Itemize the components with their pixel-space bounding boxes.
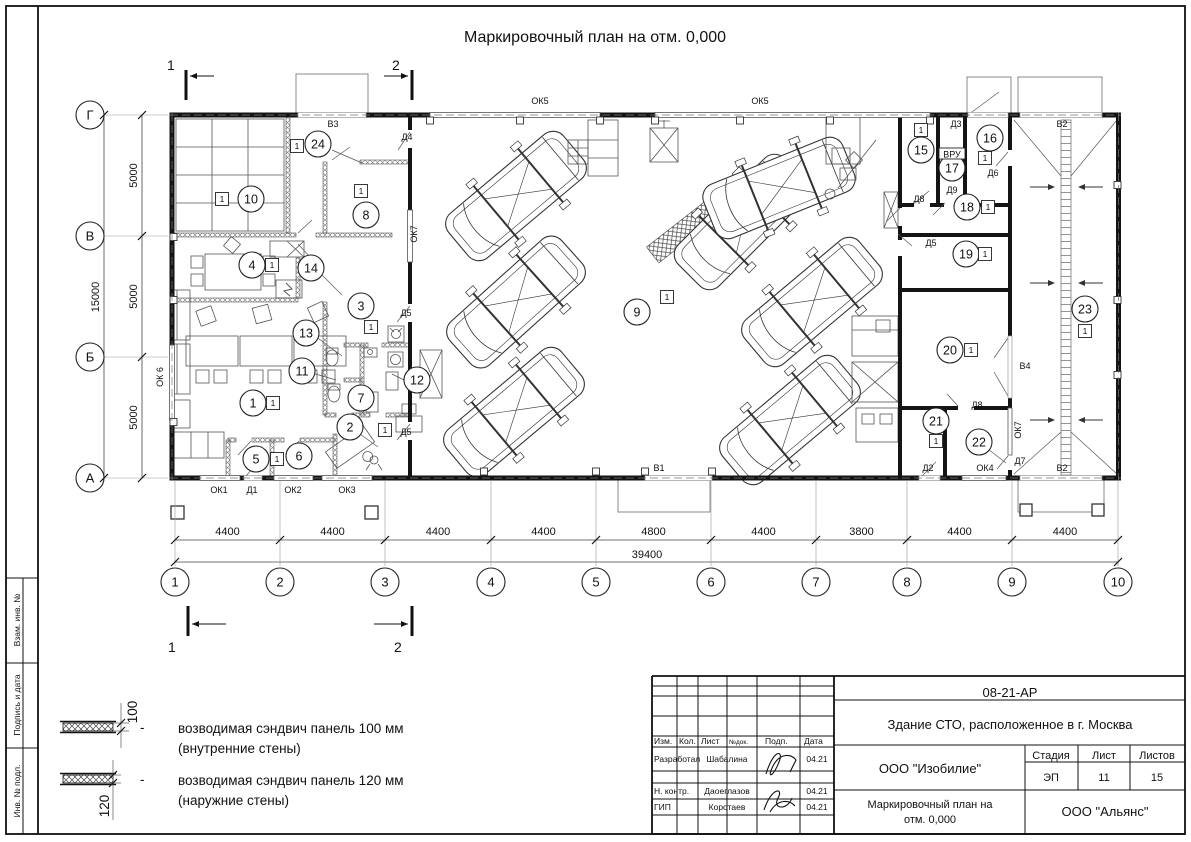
dimension-value: 4400 <box>1053 526 1077 538</box>
dimension-value: 4400 <box>320 526 344 538</box>
floor-type-number: 1 <box>270 260 275 270</box>
grid-axis-number: 5 <box>592 575 599 590</box>
floor-type-number: 1 <box>934 436 939 446</box>
col-list: Лист <box>701 736 720 746</box>
opening-label: В3 <box>327 119 338 129</box>
legend-text: возводимая сэндвич панель 120 мм <box>178 773 404 788</box>
dimension-value: 4400 <box>426 526 450 538</box>
plan-title: Маркировочный план на отм. 0,000 <box>464 29 726 46</box>
opening-label: Д8 <box>913 194 924 204</box>
room-number: 14 <box>304 262 318 276</box>
sidebar-label: Подпись и дата <box>12 674 22 735</box>
vehicles <box>430 116 896 499</box>
grid-axis-letter: В <box>86 229 95 244</box>
date: 04.21 <box>806 802 828 812</box>
legend-dash: - <box>140 720 145 735</box>
section-number: 1 <box>167 57 175 73</box>
date: 04.21 <box>806 786 828 796</box>
room-number: 24 <box>311 138 325 152</box>
section-number: 1 <box>168 639 176 655</box>
grid-axis-number: 4 <box>487 575 494 590</box>
stage-label: Стадия <box>1032 750 1070 762</box>
section-arrowhead <box>401 73 408 79</box>
signature <box>764 791 795 812</box>
opening-label: ОК7 <box>409 225 419 242</box>
grid-axis-number: 10 <box>1111 575 1125 590</box>
grid-axis-letter: Б <box>86 350 95 365</box>
section-number: 2 <box>394 639 402 655</box>
project-name: Здание СТО, расположенное в г. Москва <box>888 717 1134 732</box>
room-number: 21 <box>929 415 943 429</box>
role: ГИП <box>654 802 671 812</box>
opening-label: ОК1 <box>210 485 227 495</box>
frame-sidebar: Взам. инв. № Подпись и дата Инв. № подл. <box>12 594 22 818</box>
lane-arrowhead <box>1048 184 1055 190</box>
total-width-value: 39400 <box>632 549 663 561</box>
floor-type-number: 1 <box>986 202 991 212</box>
opening-label: В2 <box>1056 119 1067 129</box>
sidebar-label: Взам. инв. № <box>12 594 22 647</box>
stage-value: ЭП <box>1043 772 1059 784</box>
col-ndok: №док. <box>729 739 748 746</box>
opening-label: ОК 6 <box>155 367 165 387</box>
opening-label: ОК3 <box>338 485 355 495</box>
opening-label: ОК5 <box>751 96 768 106</box>
date: 04.21 <box>806 754 828 764</box>
opening-label: ОК4 <box>976 463 993 473</box>
grid-axis-letter: А <box>86 471 95 486</box>
dimension-value: 5000 <box>128 163 140 187</box>
person-name: Шабалина <box>706 754 747 764</box>
room-number: 10 <box>244 193 258 207</box>
sheet-label: Лист <box>1092 750 1116 762</box>
room-number: 1 <box>250 397 257 411</box>
room-number: 4 <box>249 259 256 273</box>
opening-label: Д5 <box>400 427 411 437</box>
opening-label: Д4 <box>401 132 412 142</box>
floor-type-number: 1 <box>359 186 364 196</box>
opening-label: ОК2 <box>284 485 301 495</box>
floor-type-number: 1 <box>665 292 670 302</box>
legend-text: возводимая сэндвич панель 100 мм <box>178 721 404 736</box>
legend-text: (наружние стены) <box>178 793 289 808</box>
col-kol: Кол. <box>679 736 696 746</box>
legend: 100 - возводимая сэндвич панель 100 мм (… <box>60 701 404 820</box>
design-company: ООО "Изобилие" <box>879 761 982 776</box>
drawing-title: отм. 0,000 <box>904 814 956 826</box>
lane-arrowhead <box>1078 417 1085 423</box>
opening-label: Д5 <box>925 238 936 248</box>
signature <box>766 753 796 774</box>
doc-number: 08-21-АР <box>983 685 1038 700</box>
role: Разработал <box>654 754 700 764</box>
lane-arrowhead <box>1078 184 1085 190</box>
grid-axis-number: 1 <box>171 575 178 590</box>
room-number: 17 <box>945 162 959 176</box>
room-number: 23 <box>1078 303 1092 317</box>
floor-type-number: 1 <box>919 125 924 135</box>
floor-type-number: 1 <box>969 345 974 355</box>
opening-label: Д7 <box>1014 456 1025 466</box>
sheets-label: Листов <box>1139 750 1175 762</box>
room-number: 22 <box>972 436 986 450</box>
title-block: 08-21-АР Здание СТО, расположенное в г. … <box>652 676 1185 834</box>
grid-axis-number: 9 <box>1008 575 1015 590</box>
opening-label: Д8 <box>971 400 982 410</box>
windows-and-gates <box>170 113 1122 481</box>
drawing-sheet: Взам. инв. № Подпись и дата Инв. № подл.… <box>0 0 1191 842</box>
sheets-value: 15 <box>1151 772 1163 784</box>
grid-axis-number: 3 <box>381 575 388 590</box>
exterior-walls <box>170 113 1122 481</box>
wall-axis-dashes <box>170 113 1121 480</box>
floor-type-number: 1 <box>295 141 300 151</box>
opening-label: Д5 <box>400 308 411 318</box>
person-name: Коротаев <box>709 802 746 812</box>
lane-arrowhead <box>1048 417 1055 423</box>
floor-type-number: 1 <box>983 153 988 163</box>
room-number: 7 <box>358 392 365 406</box>
sidebar-label: Инв. № подл. <box>12 765 22 818</box>
col-data: Дата <box>804 736 823 746</box>
legend-dim: 120 <box>97 795 112 818</box>
floor-type-number: 1 <box>983 249 988 259</box>
room-number: 5 <box>253 453 260 467</box>
interior-walls-100 <box>172 115 410 478</box>
dimension-value: 4400 <box>215 526 239 538</box>
floor-type-number: 1 <box>275 454 280 464</box>
room-number: 9 <box>634 306 641 320</box>
floor-type-number: 1 <box>1083 326 1088 336</box>
room-number: 11 <box>296 365 309 379</box>
room-number: 8 <box>363 209 370 223</box>
opening-label: В1 <box>653 463 664 473</box>
section-arrowhead <box>192 621 199 627</box>
room-number: 18 <box>960 201 974 215</box>
room-number: 2 <box>347 421 354 435</box>
lane-arrowhead <box>1078 280 1085 286</box>
opening-label: ОК5 <box>531 96 548 106</box>
legend-dim: 100 <box>125 701 140 724</box>
section-number: 2 <box>392 57 400 73</box>
dimension-value: 4400 <box>531 526 555 538</box>
legend-dash: - <box>140 772 145 787</box>
grid-axis-number: 2 <box>276 575 283 590</box>
room-number: 19 <box>959 248 973 262</box>
dimension-value: 3800 <box>849 526 873 538</box>
room-number: 16 <box>983 132 997 146</box>
room-number: 3 <box>358 300 365 314</box>
section-arrowhead <box>401 621 408 627</box>
dimension-value: 4400 <box>947 526 971 538</box>
dimension-value: 4800 <box>641 526 665 538</box>
floor-type-number: 1 <box>220 194 225 204</box>
sheet-value: 11 <box>1098 772 1109 784</box>
room-number: 12 <box>410 374 424 388</box>
room-number: 6 <box>296 450 303 464</box>
col-izm: Изм. <box>654 736 672 746</box>
grid-axis-number: 8 <box>903 575 910 590</box>
drive-through-lane <box>1014 120 1117 475</box>
dimension-value: 4400 <box>751 526 775 538</box>
opening-label: Д1 <box>246 485 257 495</box>
section-arrowhead <box>190 73 197 79</box>
room-number: 13 <box>299 327 313 341</box>
grid-axis-number: 6 <box>707 575 714 590</box>
floor-type-number: 1 <box>383 425 388 435</box>
dimension-value: 5000 <box>128 405 140 429</box>
grid-axis-letter: Г <box>86 108 93 123</box>
opening-label: ВРУ <box>943 150 961 160</box>
opening-label: В4 <box>1019 361 1030 371</box>
person-name: Даоеглазов <box>704 786 750 796</box>
opening-label: Д6 <box>987 168 998 178</box>
opening-label: Д3 <box>950 119 961 129</box>
role: Н. контр. <box>654 786 689 796</box>
opening-label: ОК7 <box>1013 421 1023 438</box>
grid-axis-number: 7 <box>812 575 819 590</box>
total-height-value: 15000 <box>90 282 102 313</box>
opening-label: В2 <box>1056 463 1067 473</box>
col-podp: Подп. <box>765 736 788 746</box>
room-number: 15 <box>914 144 928 158</box>
opening-label: Д9 <box>946 185 957 195</box>
legend-text: (внутренние стены) <box>178 741 301 756</box>
contractor: ООО "Альянс" <box>1062 804 1149 819</box>
lane-arrowhead <box>1048 280 1055 286</box>
room-number: 20 <box>943 344 957 358</box>
floor-type-number: 1 <box>271 398 276 408</box>
drawing-title: Маркировочный план на <box>867 799 993 811</box>
opening-label: Д2 <box>922 463 933 473</box>
floor-type-number: 1 <box>369 322 374 332</box>
dimension-value: 5000 <box>128 284 140 308</box>
